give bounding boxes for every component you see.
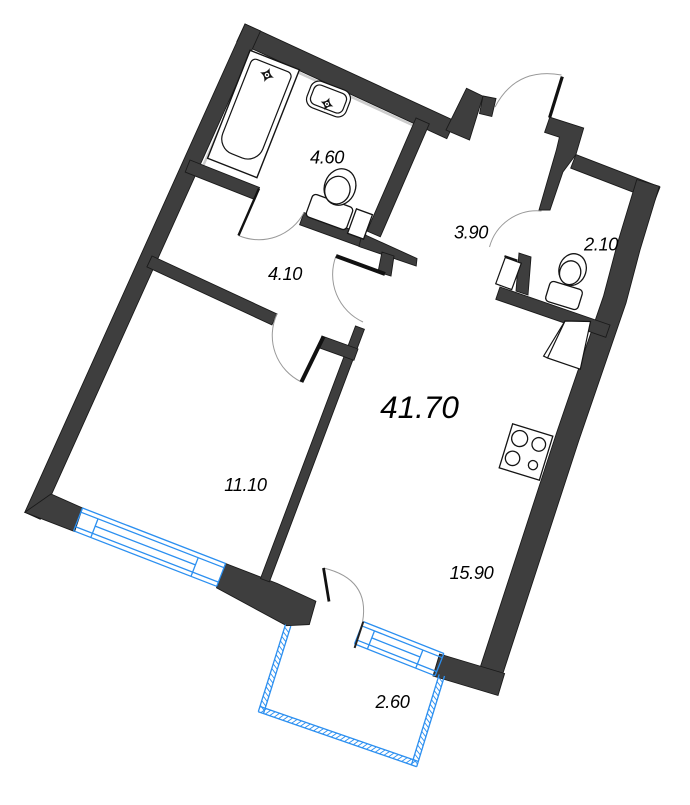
- svg-text:4.10: 4.10: [268, 264, 302, 284]
- svg-text:15.90: 15.90: [450, 563, 494, 583]
- svg-text:2.10: 2.10: [583, 235, 618, 255]
- svg-text:4.60: 4.60: [310, 148, 344, 168]
- svg-text:2.60: 2.60: [375, 692, 410, 712]
- svg-text:41.70: 41.70: [380, 389, 459, 425]
- svg-text:11.10: 11.10: [224, 475, 267, 495]
- svg-text:3.90: 3.90: [454, 223, 488, 243]
